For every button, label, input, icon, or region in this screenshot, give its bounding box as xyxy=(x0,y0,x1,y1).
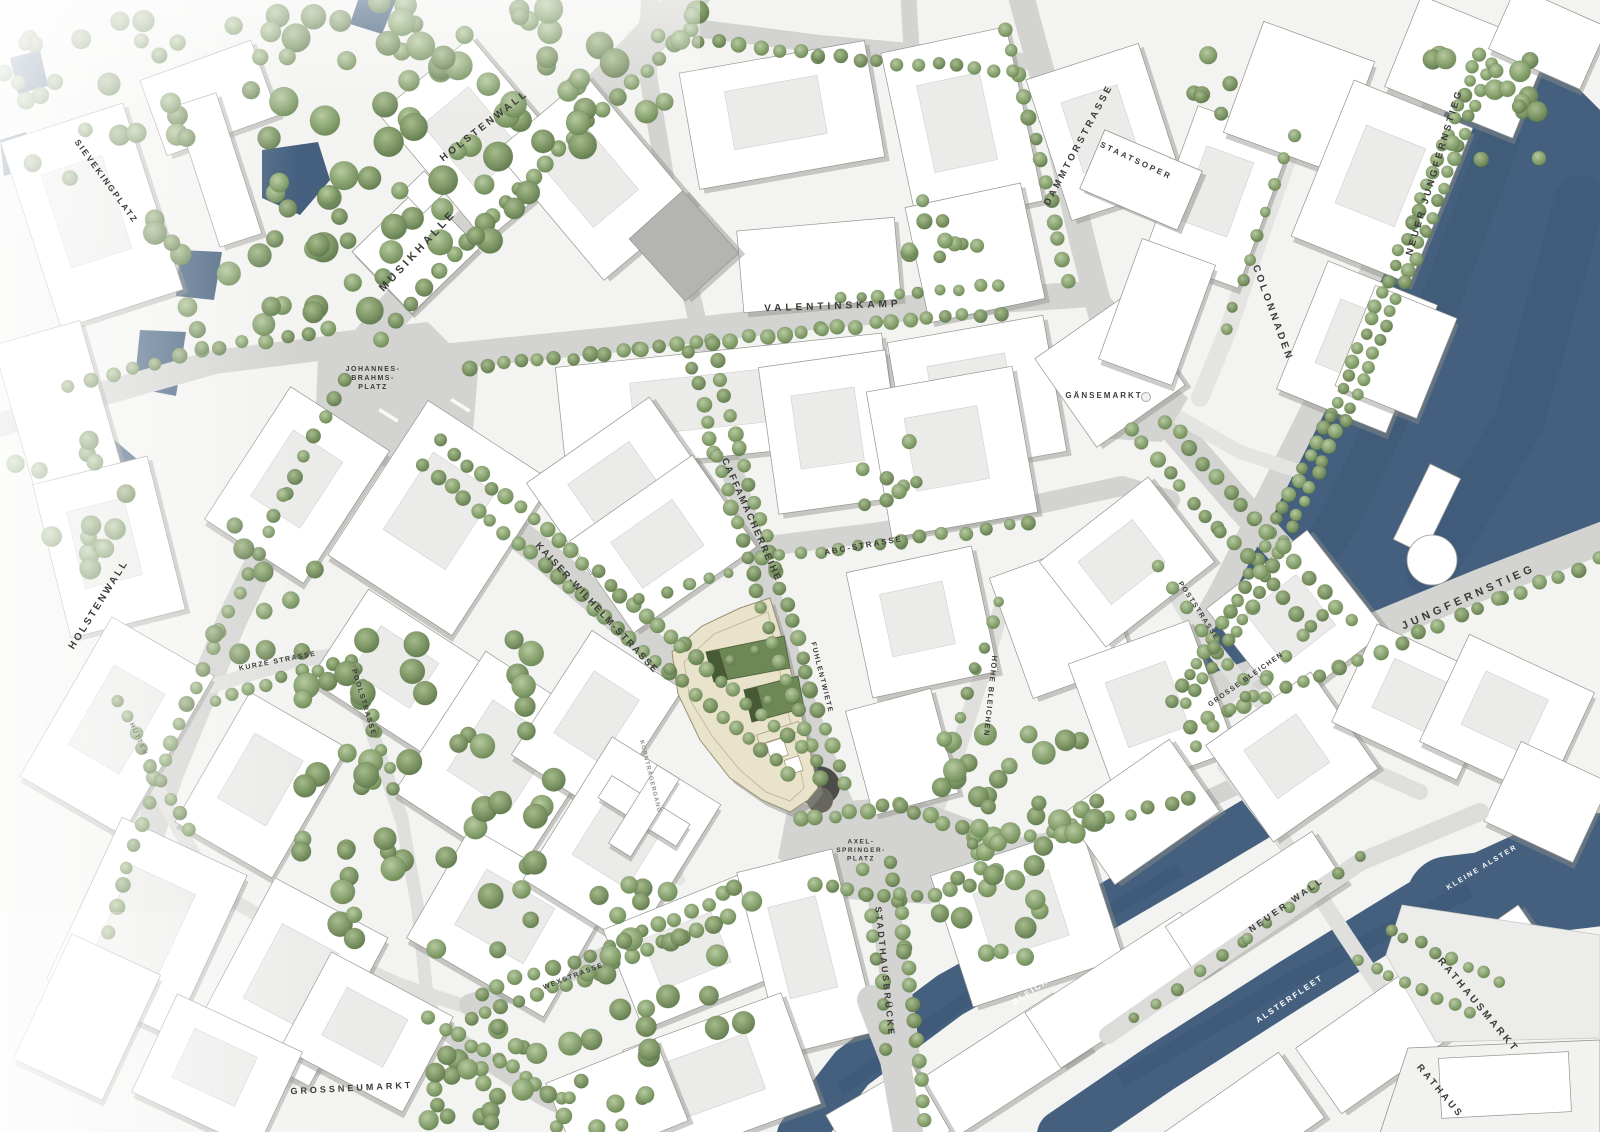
site-plan-map: SIEVEKINGPLATZHOLSTENWALLMUSIKHALLEJOHAN… xyxy=(0,0,1600,1132)
site-plan-svg: SIEVEKINGPLATZHOLSTENWALLMUSIKHALLEJOHAN… xyxy=(0,0,1600,1132)
gaensemarkt-marker xyxy=(1142,393,1151,402)
map-label-gaensemarkt: GÄNSEMARKT xyxy=(1065,391,1142,400)
